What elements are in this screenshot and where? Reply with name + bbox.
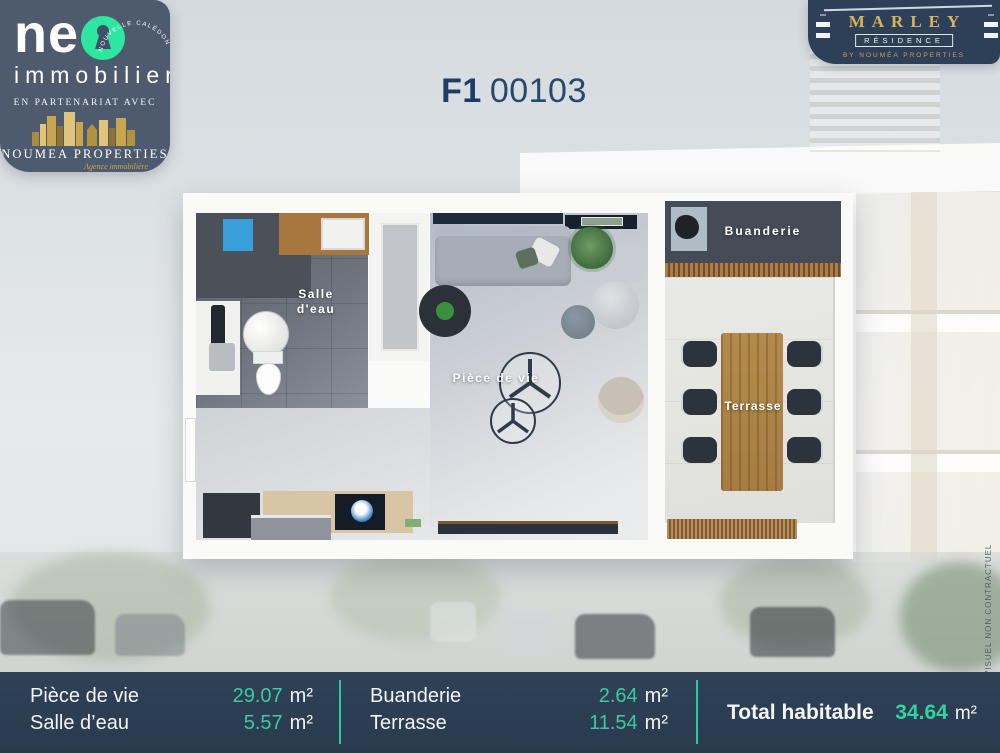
- agence-tagline-text: Agence immobilière: [0, 162, 170, 171]
- stat-label: Pièce de vie: [30, 683, 139, 710]
- marley-residence-text: RÉSIDENCE: [855, 34, 953, 47]
- terrace-chair: [683, 341, 717, 367]
- armchair: [598, 377, 644, 423]
- gold-buildings-icon: [26, 110, 144, 146]
- total-label: Total habitable: [727, 701, 874, 725]
- laundry-pile: [675, 215, 699, 239]
- marley-byline-text: BY NOUMÉA PROPERTIES: [808, 52, 1000, 59]
- terrace-label: Terrasse: [693, 399, 813, 413]
- glass-side-table-small: [489, 397, 537, 445]
- summary-total: Total habitable 34.64m²: [727, 672, 977, 753]
- stat-value: 29.07: [233, 685, 283, 707]
- background-street-scene: [0, 552, 1000, 672]
- stat-value-group: 29.07m²: [233, 683, 313, 710]
- terrace-railing: [833, 277, 845, 523]
- summary-divider: [696, 680, 698, 744]
- noumea-properties-logo: NOUMEA PROPERTIES Agence immobilière: [0, 110, 170, 171]
- summary-column-left: Pièce de vie 29.07m² Salle d’eau 5.57m²: [30, 683, 313, 737]
- background-car: [750, 607, 835, 657]
- svg-text:NOUVELLE CALÉDONIE: NOUVELLE CALÉDONIE: [96, 0, 170, 53]
- unit-number-text: 00103: [490, 72, 587, 110]
- background-motorcycle: [430, 602, 476, 642]
- living-room-label: Pièce de vie: [431, 371, 561, 385]
- area-summary-bar: IMAGE NON CONTRACTUELLE Pièce de vie 29.…: [0, 672, 1000, 753]
- shower-column: [223, 219, 253, 251]
- stat-value: 11.54: [589, 712, 638, 734]
- stat-row-buanderie: Buanderie 2.64m²: [370, 683, 668, 710]
- marley-name-text: MARLEY: [808, 12, 1000, 32]
- floor-plan: Salle d'eau Pièce de vie: [183, 193, 853, 559]
- stat-value-group: 11.54m²: [589, 710, 668, 737]
- terrace-chair: [787, 437, 821, 463]
- summary-divider: [339, 680, 341, 744]
- terrace-wood-deck: [667, 519, 797, 539]
- stat-row-piece-de-vie: Pièce de vie 29.07m²: [30, 683, 313, 710]
- background-car: [575, 614, 655, 659]
- bathroom-label: Salle d'eau: [271, 287, 361, 317]
- pouf-dark: [561, 305, 595, 339]
- stat-row-salle-deau: Salle d’eau 5.57m²: [30, 710, 313, 737]
- laundry-label: Buanderie: [703, 224, 823, 238]
- marley-residence-logo-card: MARLEY RÉSIDENCE BY NOUMÉA PROPERTIES: [808, 0, 1000, 64]
- stat-value-group: 5.57m²: [244, 710, 313, 737]
- stat-row-terrasse: Terrasse 11.54m²: [370, 710, 668, 737]
- side-watermark-text: VISUEL NON CONTRACTUEL: [984, 536, 993, 676]
- noumea-properties-text: NOUMEA PROPERTIES: [0, 147, 170, 162]
- stat-value: 5.57: [244, 712, 283, 734]
- total-value: 34.64: [895, 701, 948, 724]
- stat-label: Salle d’eau: [30, 710, 129, 737]
- arc-text-nouvelle-caledonie: NOUVELLE CALÉDONIE: [96, 0, 170, 60]
- stat-unit: m²: [645, 712, 668, 734]
- background-car: [115, 614, 185, 656]
- flyer-canvas: ne NOUVELLE CALÉDONIE immobilier EN PART…: [0, 0, 1000, 753]
- stat-unit: m²: [290, 685, 313, 707]
- potted-plant: [571, 227, 613, 269]
- wood-slat-screen: [665, 263, 841, 277]
- background-building-facade: [852, 192, 1000, 562]
- background-motorcycle: [505, 612, 553, 656]
- towels: [209, 343, 235, 371]
- window-bay: [433, 213, 563, 224]
- sideboard-artwork: [581, 217, 623, 226]
- neo-brand-text: ne: [14, 4, 79, 64]
- pouf-light: [591, 281, 639, 329]
- background-car: [0, 600, 95, 655]
- coffee-table-plant: [436, 302, 454, 320]
- terrace-chair: [787, 341, 821, 367]
- total-value-group: 34.64m²: [895, 701, 977, 725]
- kitchen-sink: [351, 500, 373, 522]
- terrace-chair: [683, 437, 717, 463]
- stat-label: Terrasse: [370, 710, 447, 737]
- stat-value-group: 2.64m²: [599, 683, 668, 710]
- bathroom-sink: [321, 218, 365, 250]
- unit-type-text: F1: [441, 72, 482, 110]
- marley-roofline: [824, 5, 992, 11]
- kitchen-decor: [405, 519, 421, 527]
- summary-column-middle: Buanderie 2.64m² Terrasse 11.54m²: [370, 683, 668, 737]
- stat-value: 2.64: [599, 685, 638, 707]
- stat-unit: m²: [645, 685, 668, 707]
- entrance-door: [185, 418, 196, 482]
- page-title: F100103: [14, 72, 1000, 111]
- low-cabinet: [438, 521, 618, 534]
- stat-unit: m²: [290, 712, 313, 734]
- closet-door: [381, 223, 419, 351]
- kitchen-island: [251, 515, 331, 540]
- stat-label: Buanderie: [370, 683, 461, 710]
- total-unit: m²: [955, 703, 977, 724]
